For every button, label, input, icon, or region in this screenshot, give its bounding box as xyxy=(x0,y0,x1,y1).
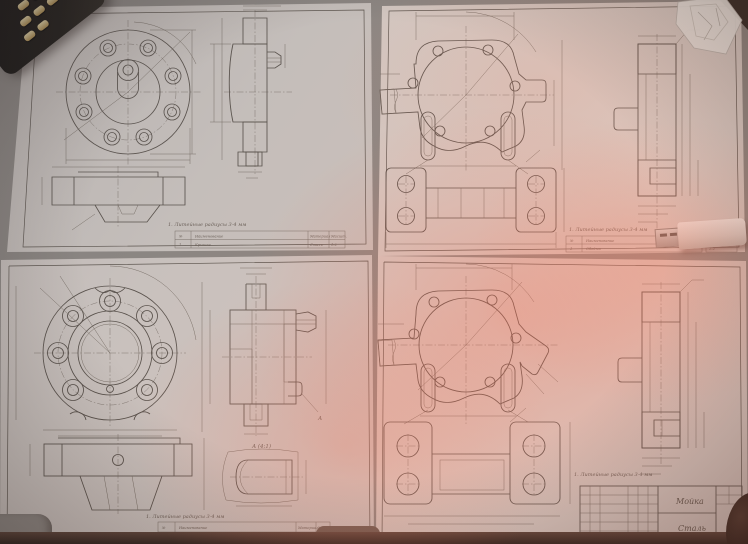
paper xyxy=(7,3,373,252)
tl-val-mat: Сталь xyxy=(310,243,323,247)
usb-connector-slot xyxy=(660,233,667,236)
br-note: 1. Литейные радиусы 3-4 мм xyxy=(574,472,652,478)
photo-scene: 1. Литейные радиусы 3-4 мм № Наименовани… xyxy=(0,0,748,544)
bl-note: 1. Литейные радиусы 3-4 мм xyxy=(146,514,224,520)
tl-val-name: Крышка xyxy=(194,243,211,247)
sheet-bottom-right: 1. Литейные радиусы 3-4 мм xyxy=(376,254,748,544)
usb-body xyxy=(677,218,747,250)
bl-col-name: Наименование xyxy=(178,526,207,530)
phone-key xyxy=(23,29,37,42)
bl-col-mat: Материал xyxy=(297,526,319,530)
tr-note: 1. Литейные радиусы 3-4 мм xyxy=(569,227,647,233)
tl-col-name: Наименование xyxy=(194,235,223,239)
tl-col-scale: Масшт. xyxy=(330,235,347,239)
phone-key xyxy=(17,0,31,12)
tl-col-mat: Материал xyxy=(309,235,331,239)
desk-edge xyxy=(0,532,748,544)
phone-key xyxy=(19,15,33,28)
crumpled-plastic xyxy=(668,0,748,66)
tr-col-num: № xyxy=(569,239,574,243)
tl-val-num: 1 xyxy=(179,243,181,247)
tl-col-num: № xyxy=(178,235,183,239)
bl-col-num: № xyxy=(161,526,166,530)
tr-val-name: Обойма xyxy=(586,247,601,251)
sheet-bottom-left-drawing: А А (4:1) xyxy=(0,254,376,544)
sheet-bottom-right-drawing: 1. Литейные радиусы 3-4 мм xyxy=(376,254,748,544)
bl-detail-arrow-label: А xyxy=(317,416,322,422)
tl-note: 1. Литейные радиусы 3-4 мм xyxy=(168,222,246,228)
phone-key xyxy=(30,0,44,1)
sheet-bottom-left: А А (4:1) xyxy=(0,254,376,544)
tl-val-scale: 1:2 xyxy=(331,243,337,247)
tr-val-num: 1 xyxy=(570,247,572,251)
usb-flash-drive xyxy=(654,216,748,252)
paper xyxy=(0,255,374,544)
phone-key xyxy=(46,0,60,7)
phone-key xyxy=(36,19,50,32)
br-part-name: Мойка xyxy=(675,497,704,506)
usb-connector-slot xyxy=(670,233,677,236)
tr-col-name: Наименование xyxy=(585,239,614,243)
phone-key xyxy=(32,4,46,17)
